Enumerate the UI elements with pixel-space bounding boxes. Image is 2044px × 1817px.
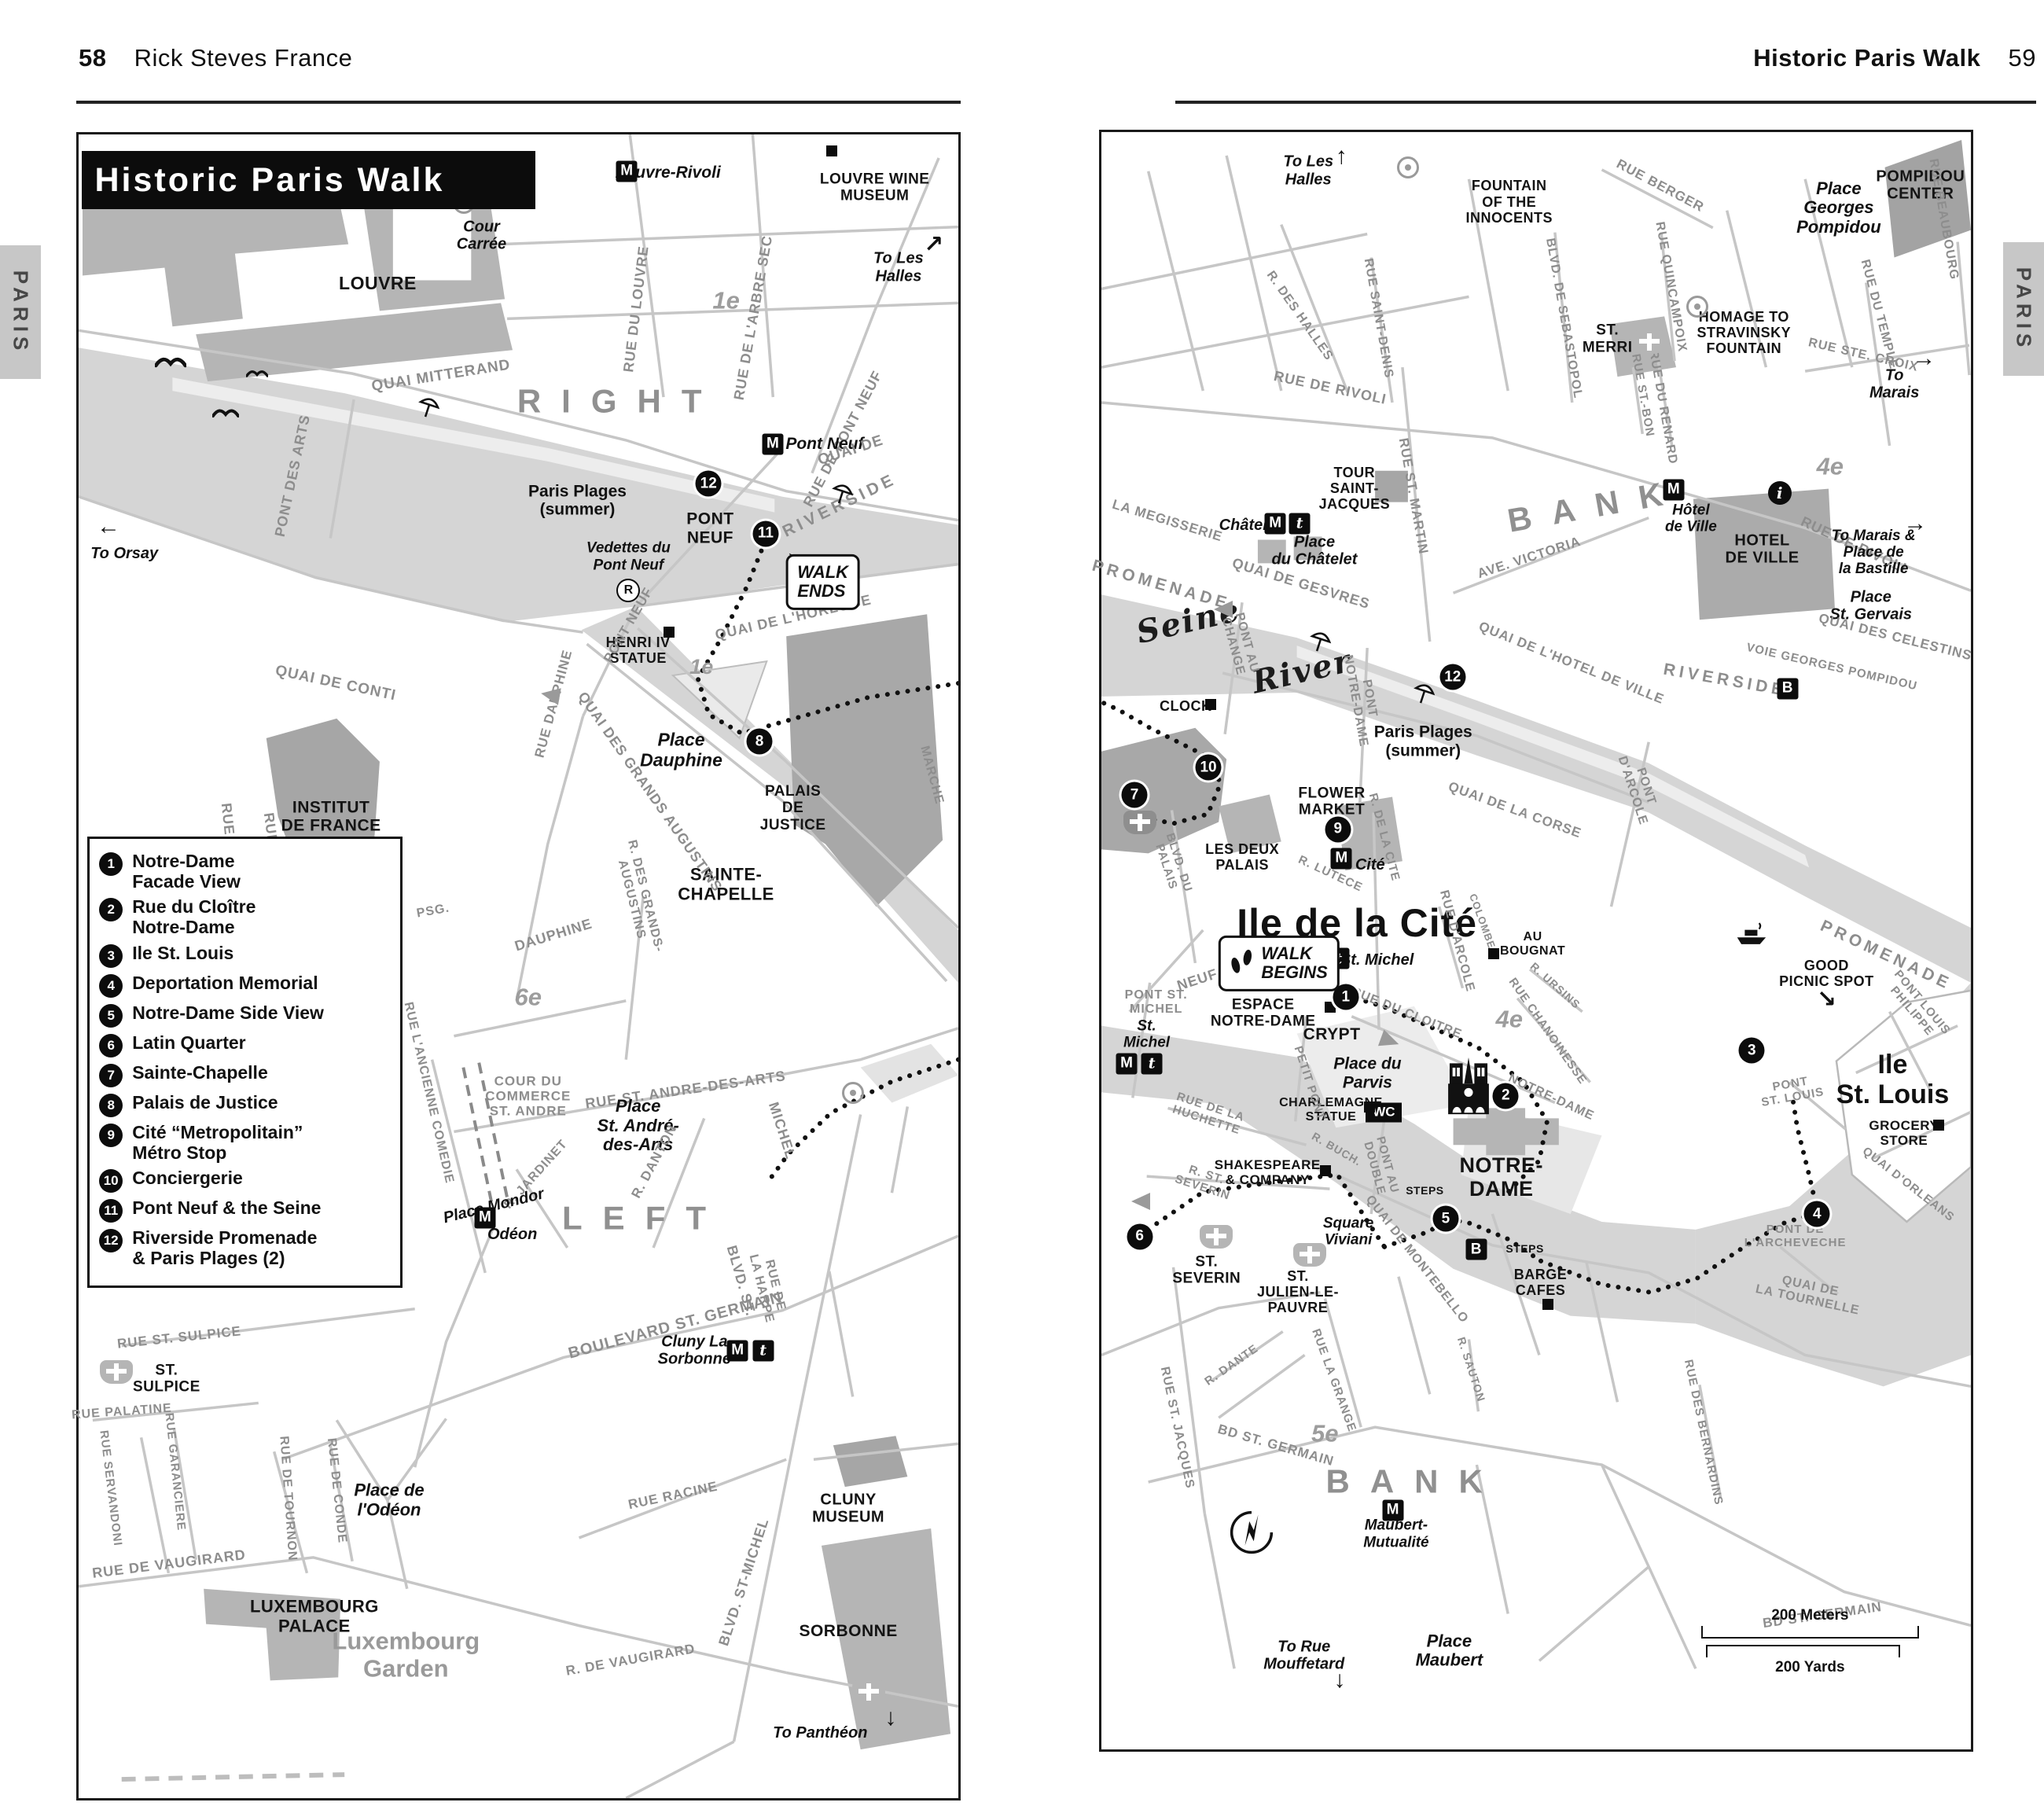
- map-label: QUAI DE LA CORSE: [1447, 778, 1584, 840]
- map-label: PALAIS DE JUSTICE: [760, 783, 826, 833]
- direction-arrow-icon: ↘: [1817, 985, 1836, 1013]
- walk-stop-marker-4: 4: [1804, 1201, 1830, 1227]
- left-page-title: Rick Steves France: [134, 44, 353, 72]
- map-label: To Les Halles: [873, 250, 924, 285]
- route-arrow-icon: [1131, 1193, 1150, 1210]
- map-label: FOUNTAIN OF THE INNOCENTS: [1465, 178, 1553, 225]
- map-label: 5e: [1311, 1421, 1338, 1448]
- map-label: PONT ST. MICHEL: [1125, 988, 1188, 1017]
- map-label: RUE DE CONDE: [324, 1437, 349, 1544]
- route-arrow-icon: [1214, 601, 1233, 618]
- map-label: DAUPHINE: [513, 915, 594, 954]
- map-label: R. SAUTON: [1454, 1335, 1487, 1403]
- map-label: Place de l'Odéon: [354, 1481, 424, 1520]
- map-label: GOOD PICNIC SPOT: [1779, 957, 1874, 988]
- map-label: PONT ST. LOUIS: [1759, 1072, 1825, 1109]
- map-label: BARGE CAFES: [1514, 1266, 1568, 1297]
- right-page-number: 59: [2009, 44, 2036, 72]
- map-label: 6e: [515, 984, 542, 1012]
- map-label: NEUF: [1175, 966, 1219, 994]
- metro-icon: M: [1265, 513, 1286, 534]
- legend-item-label: Conciergerie: [132, 1168, 243, 1189]
- roundabout-icon: [1686, 296, 1708, 318]
- map-label: RUE DE VAUGIRARD: [91, 1547, 247, 1581]
- map-label: ST. JULIEN-LE- PAUVRE: [1257, 1268, 1339, 1315]
- metro-icon: M: [1116, 1053, 1138, 1074]
- map-label: St. Michel: [1340, 951, 1414, 969]
- map-label: PSG.: [416, 902, 451, 921]
- walk-ends-box: WALK ENDS: [785, 554, 860, 609]
- map-label: Cluny La Sorbonne: [658, 1333, 731, 1368]
- map-label: MARCHE: [917, 745, 947, 806]
- map-label: To Les Halles: [1283, 153, 1333, 189]
- direction-arrow-icon: →: [1912, 345, 1936, 372]
- map-label: R. DE VAUGIRARD: [564, 1642, 697, 1679]
- legend-item-number: 2: [99, 898, 123, 921]
- walk-box-label: WALK ENDS: [797, 563, 848, 601]
- map-label: GROCERY STORE: [1869, 1118, 1939, 1148]
- map-label: BLVD. DE SEBASTOPOL: [1543, 237, 1586, 399]
- map-label: Paris Plages (summer): [1374, 723, 1472, 760]
- direction-arrow-icon: ↑: [1336, 143, 1347, 170]
- walk-begins-box: WALK BEGINS: [1218, 936, 1339, 991]
- map-label: QUAI DES GRANDS AUGUSTINS: [575, 689, 726, 895]
- map-label: RUE PALATINE: [71, 1402, 172, 1423]
- paris-tab-right: PARIS: [2003, 242, 2044, 376]
- map-label: QUAI DE L'HOTEL DE VILLE: [1477, 619, 1667, 707]
- legend-item: 9Cité “Metropolitain” Métro Stop: [99, 1123, 391, 1164]
- legend-item: 3Ile St. Louis: [99, 943, 391, 968]
- metro-icon: M: [1382, 1499, 1403, 1521]
- map-label: QUAI MITTERAND: [370, 356, 512, 395]
- direction-arrow-icon: →: [1903, 510, 1927, 537]
- map-label: Paris Plages (summer): [528, 482, 627, 519]
- scale-bar: 200 Meters 200 Yards: [1701, 1607, 1919, 1676]
- legend-item-label: Latin Quarter: [132, 1033, 245, 1054]
- landmark-square-icon: [1542, 1299, 1553, 1310]
- map-label: AVE. VICTORIA: [1476, 534, 1583, 581]
- map-label: BANK: [1325, 1462, 1502, 1499]
- map-label: Cour Carrée: [457, 219, 506, 254]
- legend-item-label: Deportation Memorial: [132, 973, 318, 994]
- map-label: RUE LA GRANGE: [1309, 1327, 1358, 1434]
- map-label: Cité: [1355, 856, 1385, 874]
- map-label: LA MEGISSERIE: [1111, 496, 1225, 544]
- route-arrow-icon: [1378, 1030, 1402, 1053]
- walk-stop-marker-10: 10: [1196, 755, 1222, 781]
- map-label: To Orsay: [90, 545, 158, 562]
- church-icon: [1200, 1225, 1233, 1249]
- taxi-icon: t: [1289, 513, 1311, 534]
- footsteps-icon: [1230, 950, 1253, 977]
- legend-item: 10Conciergerie: [99, 1168, 391, 1193]
- paris-tab-label: PARIS: [9, 270, 33, 355]
- legend-item: 6Latin Quarter: [99, 1033, 391, 1057]
- map-label: Place Dauphine: [640, 730, 722, 771]
- map-label: PONT AU DOUBLE: [1360, 1135, 1401, 1198]
- beach-umbrella-icon: [417, 395, 440, 419]
- tourist-info-icon: i: [1768, 481, 1792, 505]
- legend-item: 1Notre-Dame Facade View: [99, 851, 391, 892]
- walk-stop-marker-9: 9: [1325, 816, 1351, 842]
- map-label: R. DES HALLES: [1263, 269, 1336, 364]
- landmark-square-icon: [1933, 1120, 1944, 1131]
- legend-item: 11Pont Neuf & the Seine: [99, 1198, 391, 1223]
- legend-item-label: Notre-Dame Facade View: [132, 851, 241, 892]
- map-label: Ile St. Louis: [1836, 1050, 1950, 1109]
- map-label: R. DES GRANDS- AUGUSTINS: [611, 839, 666, 958]
- church-icon: [1293, 1243, 1326, 1267]
- map-label: RIGHT: [517, 382, 722, 419]
- map-label: 1e: [689, 655, 713, 679]
- metro-icon: M: [727, 1340, 748, 1361]
- legend-item-number: 7: [99, 1064, 123, 1087]
- right-header-rule: [1175, 101, 2036, 104]
- map-label: NOTRE- DAME: [1460, 1153, 1544, 1201]
- church-icon: [1123, 811, 1156, 834]
- legend-item: 7Sainte-Chapelle: [99, 1063, 391, 1087]
- legend-item: 8Palais de Justice: [99, 1093, 391, 1117]
- map-label: ST. SULPICE: [133, 1363, 200, 1396]
- compass-icon: [1227, 1508, 1276, 1557]
- walk-stop-marker-6: 6: [1127, 1223, 1153, 1249]
- boat-tour-icon: R: [616, 579, 640, 602]
- map-label: Place du Châtelet: [1272, 533, 1358, 568]
- legend-item-label: Sainte-Chapelle: [132, 1063, 268, 1083]
- right-map-labels: To Les HallesFOUNTAIN OF THE INNOCENTSRU…: [1101, 132, 1971, 1749]
- map-label: Maubert- Mutualité: [1363, 1517, 1428, 1551]
- legend-item-label: Pont Neuf & the Seine: [132, 1198, 321, 1219]
- map-label: 4e: [1817, 453, 1844, 480]
- legend-item-label: Rue du Cloître Notre-Dame: [132, 897, 256, 938]
- walk-stop-marker-8: 8: [747, 729, 773, 755]
- legend-item-number: 9: [99, 1124, 123, 1147]
- landmark-square-icon: [1364, 1102, 1375, 1113]
- bird-icon: [155, 353, 186, 369]
- map-label: CLOCK: [1160, 698, 1212, 714]
- map-label: QUAI DE CONTI: [274, 663, 398, 704]
- left-page-number: 58: [79, 44, 106, 72]
- right-page-title: Historic Paris Walk: [1753, 44, 1980, 72]
- map-label: R. DANTE: [1203, 1343, 1261, 1389]
- taxi-icon: t: [752, 1340, 774, 1361]
- metro-icon: M: [474, 1207, 495, 1228]
- direction-arrow-icon: ↓: [884, 1705, 896, 1731]
- map-label: STEPS: [1505, 1244, 1543, 1256]
- landmark-square-icon: [1205, 699, 1216, 710]
- map-label: HOMAGE TO STRAVINSKY FOUNTAIN: [1697, 309, 1791, 356]
- map-right-page: To Les HallesFOUNTAIN OF THE INNOCENTSRU…: [1099, 130, 1973, 1752]
- map-label: HOTEL DE VILLE: [1726, 531, 1800, 567]
- map-label: BLVD. ST-MICHEL: [715, 1516, 772, 1648]
- landmark-square-icon: [1488, 948, 1499, 959]
- scale-yards-label: 200 Yards: [1701, 1659, 1919, 1676]
- beach-umbrella-icon: [1412, 682, 1436, 705]
- map-label: St. Michel: [1123, 1018, 1170, 1052]
- map-label: INSTITUT DE FRANCE: [281, 798, 381, 835]
- left-header-rule: [76, 101, 961, 104]
- map-label: RUE DES BERNARDINS: [1681, 1359, 1725, 1506]
- map-label: LEFT: [562, 1199, 726, 1236]
- boat-icon: [1735, 922, 1770, 946]
- map-label: LOUVRE: [339, 274, 417, 295]
- map-label: LOUVRE WINE MUSEUM: [820, 171, 930, 204]
- map-label: ST. MERRI: [1583, 322, 1633, 356]
- church-icon: [100, 1360, 133, 1384]
- taxi-icon: t: [1141, 1053, 1163, 1074]
- legend-item-label: Cité “Metropolitain” Métro Stop: [132, 1123, 303, 1164]
- map-label: PONT DES ARTS: [272, 413, 314, 538]
- legend-item: 4Deportation Memorial: [99, 973, 391, 998]
- map-label: SORBONNE: [799, 1623, 897, 1642]
- right-page-header: Historic Paris Walk 59: [1175, 44, 2036, 72]
- map-label: PONT DE L'ARCHEVECHE: [1744, 1223, 1847, 1250]
- legend-item-number: 5: [99, 1004, 123, 1028]
- legend-item-number: 6: [99, 1034, 123, 1057]
- route-arrow-icon: [539, 685, 561, 705]
- map-label: RUE DE RIVOLI: [1272, 368, 1388, 407]
- map-label: Place du Parvis: [1333, 1055, 1401, 1092]
- map-label: LES DEUX PALAIS: [1205, 840, 1279, 872]
- scale-meters-bar: [1701, 1626, 1919, 1639]
- church-icon: [852, 1680, 885, 1704]
- beach-umbrella-icon: [1308, 630, 1332, 653]
- map-label: CLUNY MUSEUM: [812, 1491, 884, 1526]
- map-label: ST. SEVERIN: [1172, 1254, 1241, 1288]
- legend-item: 12Riverside Promenade & Paris Plages (2): [99, 1228, 391, 1269]
- legend-item-number: 4: [99, 974, 123, 998]
- legend-item-label: Notre-Dame Side View: [132, 1003, 324, 1024]
- legend-item-label: Palais de Justice: [132, 1093, 278, 1113]
- map-label: Place Maubert: [1416, 1631, 1483, 1670]
- map-label: QUAI DE LA TOURNELLE: [1755, 1268, 1864, 1318]
- map-label: To Rue Mouffetard: [1263, 1638, 1344, 1673]
- map-label: TOUR SAINT- JACQUES: [1319, 464, 1391, 511]
- map-title: Historic Paris Walk: [94, 161, 444, 200]
- map-label: RUE DE TOURNON: [277, 1436, 300, 1561]
- direction-arrow-icon: ↓: [1334, 1667, 1346, 1694]
- map-label: COUR DU COMMERCE ST. ANDRE: [485, 1074, 571, 1119]
- metro-icon: M: [762, 433, 783, 454]
- map-label: To Marais: [1869, 367, 1919, 403]
- walk-stop-marker-7: 7: [1122, 782, 1148, 808]
- walk-stop-marker-2: 2: [1493, 1083, 1519, 1109]
- metro-icon: M: [1331, 848, 1352, 869]
- map-label: To Panthéon: [773, 1724, 867, 1742]
- map-label: RUE ST. JACQUES: [1157, 1365, 1197, 1489]
- map-label: FLOWER MARKET: [1298, 785, 1365, 818]
- map-left-page: Louvre-RivoliLOUVRE WINE MUSEUMCour Carr…: [76, 132, 961, 1800]
- map-label: AU BOUGNAT: [1500, 930, 1565, 958]
- batobus-icon: B: [1465, 1239, 1487, 1260]
- direction-arrow-icon: ←: [97, 513, 120, 540]
- map-label: Square Viviani: [1323, 1215, 1373, 1249]
- roundabout-icon: [1397, 156, 1419, 178]
- walk-stop-marker-5: 5: [1432, 1206, 1458, 1232]
- legend-item-label: Riverside Promenade & Paris Plages (2): [132, 1228, 317, 1269]
- legend-item-number: 10: [99, 1169, 123, 1193]
- landmark-square-icon: [664, 627, 675, 638]
- map-label: ESPACE NOTRE-DAME: [1211, 997, 1316, 1031]
- map-label: Odéon: [487, 1225, 537, 1242]
- map-label: SAINTE- CHAPELLE: [678, 866, 774, 904]
- map-label: BANK: [1505, 472, 1686, 539]
- map-label: RUE L'ANCIENNE COMEDIE: [401, 1001, 457, 1185]
- map-label: CRYPT: [1303, 1025, 1361, 1044]
- map-label: RUE DE LA HUCHETTE: [1171, 1091, 1246, 1138]
- scale-meters-label: 200 Meters: [1701, 1607, 1919, 1624]
- batobus-icon: B: [1777, 678, 1798, 699]
- map-label: POMPIDOU CENTER: [1876, 167, 1965, 203]
- legend-list: 1Notre-Dame Facade View2Rue du Cloître N…: [99, 851, 391, 1269]
- map-label: PONT NEUF: [686, 510, 733, 547]
- notre-dame-icon: [1447, 1057, 1491, 1116]
- legend-item-number: 1: [99, 852, 123, 876]
- legend-item: 5Notre-Dame Side View: [99, 1003, 391, 1028]
- map-label: 1e: [712, 287, 739, 314]
- legend-item-number: 3: [99, 944, 123, 968]
- walk-stop-marker-12: 12: [1439, 664, 1465, 690]
- church-icon: [1633, 330, 1666, 354]
- map-label: QUAI D'ORLEANS: [1860, 1145, 1957, 1225]
- map-label: PONT D'ARCOLE: [1614, 750, 1663, 827]
- walk-box-label: WALK BEGINS: [1261, 944, 1327, 982]
- map-title-box: Historic Paris Walk: [82, 151, 535, 209]
- book-spread: 58 Rick Steves France Historic Paris Wal…: [0, 0, 2044, 1817]
- legend-item: 2Rue du Cloître Notre-Dame: [99, 897, 391, 938]
- map-label: RUE DE L'ARBRE SEC: [731, 234, 776, 401]
- map-label: RUE GARANCIERE: [162, 1412, 187, 1532]
- scale-yards-bar: [1706, 1645, 1900, 1657]
- map-label: RUE DU CLOITRE: [1349, 985, 1464, 1043]
- map-label: RUE SERVANDONI: [97, 1430, 124, 1547]
- bird-icon: [246, 367, 268, 378]
- map-label: RUE RACINE: [627, 1479, 719, 1513]
- map-label: Vedettes du Pont Neuf: [586, 540, 671, 574]
- map-label: RUE BERGER: [1614, 156, 1707, 215]
- map-label: RIVERSIDE: [1662, 660, 1788, 701]
- beach-umbrella-icon: [830, 482, 854, 506]
- map-label: RUE ST. MARTIN: [1396, 436, 1432, 555]
- landmark-square-icon: [826, 145, 837, 156]
- legend-item-number: 8: [99, 1094, 123, 1117]
- landmark-square-icon: [1320, 1165, 1331, 1176]
- map-label: RUE DU LOUVRE: [621, 245, 653, 373]
- map-label: River: [1249, 644, 1355, 701]
- legend-item-number: 12: [99, 1229, 123, 1252]
- map-label: STEPS: [1406, 1185, 1443, 1197]
- direction-arrow-icon: ↗: [924, 230, 943, 258]
- paris-tab-label: PARIS: [2012, 267, 2036, 351]
- map-label: MICHEL: [766, 1101, 799, 1162]
- map-label: Hôtel de Ville: [1665, 502, 1717, 535]
- map-label: Luxembourg Garden: [332, 1628, 480, 1682]
- metro-icon: M: [1663, 479, 1684, 500]
- paris-tab-left: PARIS: [0, 245, 41, 379]
- metro-icon: M: [616, 160, 638, 182]
- legend-item-label: Ile St. Louis: [132, 943, 233, 964]
- map-label: PONT AU CHANGE: [1218, 612, 1261, 679]
- map-label: Place Georges Pompidou: [1796, 179, 1881, 237]
- left-page-header: 58 Rick Steves France: [79, 44, 352, 72]
- map-label: RUE ST. SULPICE: [116, 1323, 242, 1352]
- legend-box: 1Notre-Dame Facade View2Rue du Cloître N…: [87, 837, 403, 1288]
- bird-icon: [212, 406, 239, 419]
- map-label: BLVD. DU PALAIS: [1150, 832, 1194, 898]
- map-label: 4e: [1495, 1006, 1522, 1034]
- map-label: RUE SAINT-DENIS: [1360, 257, 1395, 379]
- walk-stop-marker-3: 3: [1739, 1038, 1765, 1064]
- legend-item-number: 11: [99, 1199, 123, 1223]
- roundabout-icon: [842, 1082, 864, 1104]
- walk-stop-marker-12: 12: [696, 471, 722, 497]
- walk-stop-marker-11: 11: [752, 520, 778, 546]
